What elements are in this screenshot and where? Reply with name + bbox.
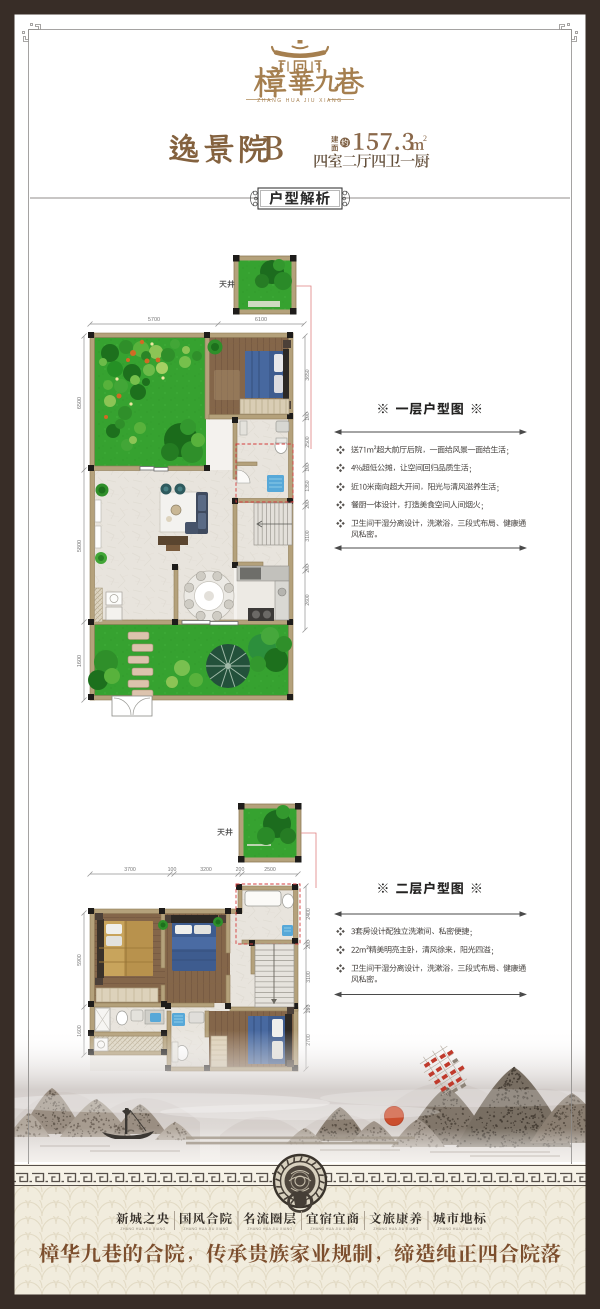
svg-text:5900: 5900	[77, 954, 83, 966]
svg-text:3700: 3700	[124, 867, 136, 873]
svg-text:2: 2	[423, 134, 427, 143]
svg-text:1600: 1600	[77, 655, 83, 667]
svg-text:200: 200	[305, 564, 311, 573]
svg-text:ZHANG HUA JIU XIANG: ZHANG HUA JIU XIANG	[120, 1227, 165, 1231]
svg-text:2500: 2500	[264, 867, 276, 873]
svg-text:2400: 2400	[306, 908, 312, 920]
svg-text:100: 100	[306, 1005, 312, 1014]
svg-text:3100: 3100	[306, 971, 312, 983]
svg-text:3100: 3100	[305, 530, 311, 541]
svg-text:5700: 5700	[148, 317, 160, 323]
svg-text:100: 100	[305, 463, 311, 472]
svg-text:200: 200	[305, 500, 311, 509]
svg-text:1350: 1350	[305, 480, 311, 491]
svg-text:3650: 3650	[305, 369, 311, 380]
svg-text:5800: 5800	[77, 540, 83, 552]
svg-text:ZHANG HUA JIU XIANG: ZHANG HUA JIU XIANG	[183, 1227, 228, 1231]
svg-text:ZHANG HUA JIU XIANG: ZHANG HUA JIU XIANG	[310, 1227, 355, 1231]
svg-text:6500: 6500	[77, 397, 83, 409]
svg-text:100: 100	[305, 412, 311, 421]
svg-text:200: 200	[236, 867, 245, 873]
svg-text:6100: 6100	[255, 317, 267, 323]
svg-text:ZHANG HUA JIU XIANG: ZHANG HUA JIU XIANG	[437, 1227, 482, 1231]
svg-text:100: 100	[168, 867, 177, 873]
svg-text:ZHANG HUA JIU XIANG: ZHANG HUA JIU XIANG	[373, 1227, 418, 1231]
svg-text:2500: 2500	[305, 436, 311, 447]
svg-text:ZHANG HUA JIU XIANG: ZHANG HUA JIU XIANG	[247, 1227, 292, 1231]
svg-text:2600: 2600	[305, 594, 311, 605]
svg-text:200: 200	[306, 940, 312, 949]
svg-text:3200: 3200	[200, 867, 212, 873]
svg-text:ZHANG HUA JIU XIANG: ZHANG HUA JIU XIANG	[257, 98, 342, 104]
